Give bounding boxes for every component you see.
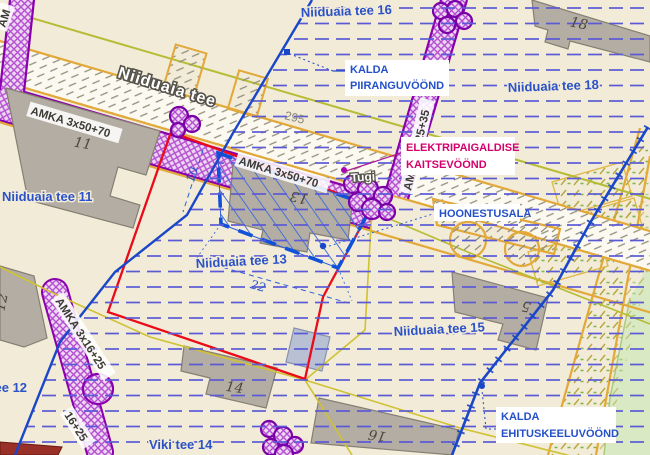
street-label-viki-tee-14: Viki tee 14 [149,437,213,452]
street-label-niiduaia-tee-11: Niiduaia tee 11 [2,189,92,204]
kalda-ehituskeeluvoond-label: KALDA EHITUSKEELUVÖÖND [496,407,619,443]
zone-label-text: EHITUSKEELUVÖÖND [501,427,619,440]
map-canvas[interactable]: AMKA 3x50+70 AMKA 3x50+70 AMKA 3x25+35 A… [0,0,650,455]
street-label-niiduaia-tee-12: Niiduaia tee 12 [0,380,27,395]
zone-label-text: KALDA [350,64,389,76]
street-label-niiduaia-tee-16: Niiduaia tee 16 [301,2,393,20]
leader-node [284,49,290,55]
zone-label-text: KALDA [501,411,540,423]
zone-label-text: PIIRANGUVÖÖND [350,79,444,92]
zone-label-text: HOONESTUSALA [439,208,531,220]
zone-label-text: ELEKTRIPAIGALDISE [406,142,519,154]
zone-label-text: KAITSEVÖÖND [406,158,487,171]
kalda-piiranguvoond-label: KALDA PIIRANGUVÖÖND [345,60,449,96]
detail-plan-map: AMKA 3x50+70 AMKA 3x50+70 AMKA 3x25+35 A… [0,0,650,455]
leader-node [479,383,485,389]
plot-number-14: 14 [225,379,245,397]
leader-node [320,243,326,249]
elektripaigaldise-kaitsevoond-label: ELEKTRIPAIGALDISE KAITSEVÖÖND [401,137,519,175]
pole-support-label: Tugi [350,169,375,185]
hoonestusala-label: HOONESTUSALA [434,204,531,221]
utility-pole-icon [171,123,185,137]
street-label-niiduaia-tee-18: Niiduaia tee 18 [508,77,600,95]
plot-number-16: 16 [367,425,387,444]
leader-node [341,167,347,173]
plot-number-11: 11 [73,135,93,154]
utility-pole-icon [184,116,200,132]
